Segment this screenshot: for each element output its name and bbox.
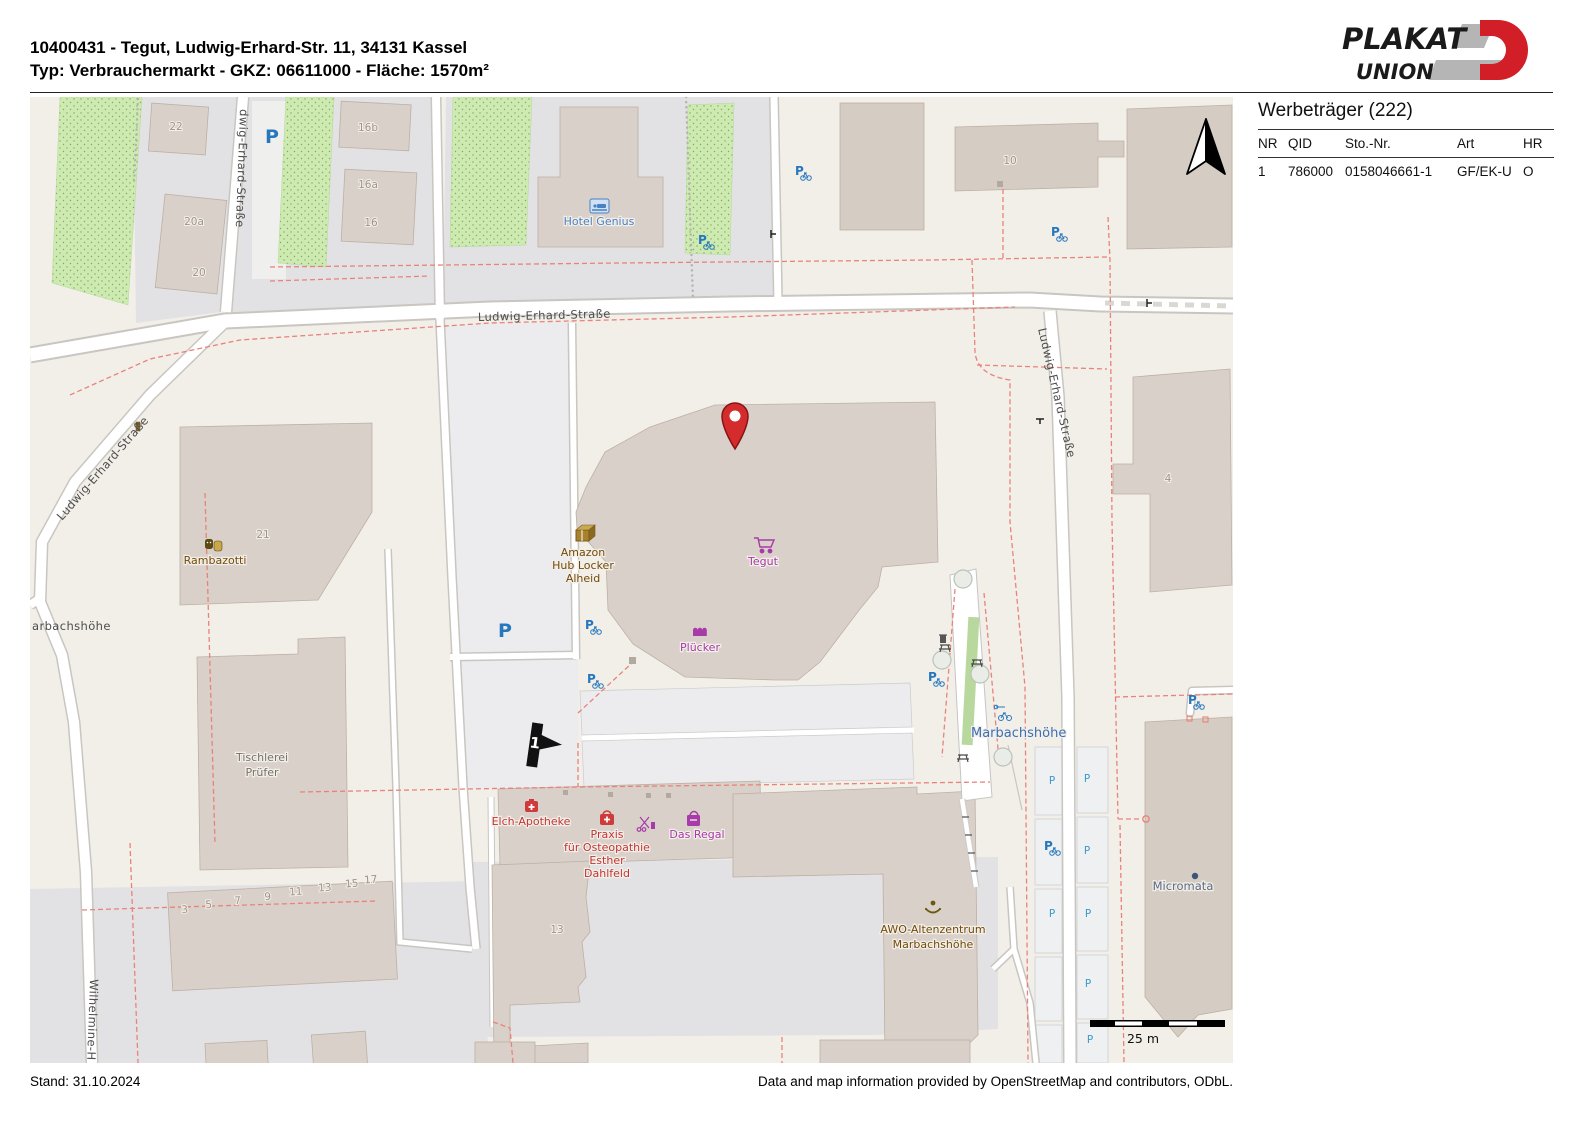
col-qid: QID bbox=[1288, 136, 1345, 151]
logo-word-union: UNION bbox=[1356, 60, 1434, 84]
svg-text:AWO-Altenzentrum: AWO-Altenzentrum bbox=[880, 923, 985, 936]
amazon-locker-icon bbox=[576, 525, 595, 541]
cell-nr: 1 bbox=[1258, 164, 1288, 179]
page-title: 10400431 - Tegut, Ludwig-Erhard-Str. 11,… bbox=[30, 36, 489, 59]
building-micromata bbox=[1145, 717, 1232, 1037]
cell-hr: O bbox=[1523, 164, 1552, 179]
svg-text:22: 22 bbox=[169, 121, 182, 133]
svg-text:Tegut: Tegut bbox=[747, 555, 779, 568]
svg-text:Elch-Apotheke: Elch-Apotheke bbox=[492, 815, 571, 828]
col-nr: NR bbox=[1258, 136, 1288, 151]
svg-text:Hub Locker: Hub Locker bbox=[552, 559, 614, 572]
header: 10400431 - Tegut, Ludwig-Erhard-Str. 11,… bbox=[30, 36, 489, 82]
svg-text:Marbachshöhe: Marbachshöhe bbox=[893, 938, 974, 951]
table-header-row: NR QID Sto.-Nr. Art HR bbox=[1258, 130, 1554, 158]
svg-text:11: 11 bbox=[289, 886, 303, 899]
svg-text:13: 13 bbox=[550, 924, 563, 936]
scale-label: 25 m bbox=[1127, 1031, 1159, 1046]
plakat-union-logo: PLAKAT UNION bbox=[1340, 18, 1550, 88]
col-sto-nr: Sto.-Nr. bbox=[1345, 136, 1457, 151]
svg-text:15: 15 bbox=[345, 878, 359, 891]
svg-text:Tischlerei: Tischlerei bbox=[235, 751, 288, 764]
svg-text:Esther: Esther bbox=[589, 854, 625, 867]
svg-text:16: 16 bbox=[364, 217, 378, 229]
svg-text:Hotel Genius: Hotel Genius bbox=[564, 215, 635, 228]
werbetraeger-title: Werbeträger (222) bbox=[1258, 100, 1554, 130]
page: { "header": { "line1": "10400431 - Tegut… bbox=[0, 0, 1587, 1123]
svg-text:Dahlfeld: Dahlfeld bbox=[584, 867, 630, 880]
svg-text:Praxis: Praxis bbox=[591, 828, 624, 841]
logo-red-d-icon bbox=[1480, 20, 1528, 80]
svg-text:17: 17 bbox=[364, 874, 378, 887]
map-canvas[interactable]: P P P bbox=[30, 97, 1233, 1063]
svg-text:Amazon: Amazon bbox=[561, 546, 605, 559]
svg-text:20: 20 bbox=[192, 267, 205, 279]
werbetraeger-panel: Werbeträger (222) NR QID Sto.-Nr. Art HR… bbox=[1258, 100, 1554, 185]
cell-art: GF/EK-U bbox=[1457, 164, 1523, 179]
svg-text:für Osteopathie: für Osteopathie bbox=[564, 841, 650, 854]
waste-bin-icon bbox=[939, 635, 947, 643]
bakery-icon bbox=[693, 628, 707, 636]
col-art: Art bbox=[1457, 136, 1523, 151]
cell-qid: 786000 bbox=[1288, 164, 1345, 179]
cell-sto-nr: 0158046661-1 bbox=[1345, 164, 1457, 179]
svg-text:arbachshöhe: arbachshöhe bbox=[32, 619, 111, 633]
svg-text:Prüfer: Prüfer bbox=[245, 766, 279, 779]
svg-text:Das Regal: Das Regal bbox=[669, 828, 724, 841]
map-container: P P P bbox=[30, 97, 1233, 1063]
page-subtitle: Typ: Verbrauchermarkt - GKZ: 06611000 - … bbox=[30, 59, 489, 82]
svg-text:7: 7 bbox=[234, 895, 242, 907]
svg-text:21: 21 bbox=[256, 529, 269, 541]
svg-text:Alheid: Alheid bbox=[566, 572, 600, 585]
svg-text:Wilhelmine-H: Wilhelmine-H bbox=[84, 979, 101, 1061]
svg-text:16a: 16a bbox=[358, 179, 378, 191]
table-row[interactable]: 1 786000 0158046661-1 GF/EK-U O bbox=[1258, 158, 1554, 185]
osm-attribution: Data and map information provided by Ope… bbox=[30, 1074, 1233, 1089]
place-label-marbachshoehe: Marbachshöhe bbox=[971, 726, 1066, 741]
svg-text:20a: 20a bbox=[184, 216, 204, 228]
svg-text:16b: 16b bbox=[358, 122, 378, 134]
header-divider bbox=[30, 92, 1553, 93]
logo-word-plakat: PLAKAT bbox=[1342, 22, 1468, 56]
col-hr: HR bbox=[1523, 136, 1552, 151]
svg-text:9: 9 bbox=[264, 891, 272, 903]
svg-text:10: 10 bbox=[1003, 155, 1016, 167]
svg-text:3: 3 bbox=[181, 904, 189, 916]
svg-text:Micromata: Micromata bbox=[1153, 879, 1214, 893]
svg-text:4: 4 bbox=[1165, 473, 1172, 485]
svg-text:Rambazotti: Rambazotti bbox=[184, 554, 247, 567]
svg-text:5: 5 bbox=[205, 899, 213, 911]
svg-text:Plücker: Plücker bbox=[680, 641, 720, 654]
hotel-icon bbox=[590, 199, 609, 213]
svg-text:13: 13 bbox=[318, 882, 332, 895]
